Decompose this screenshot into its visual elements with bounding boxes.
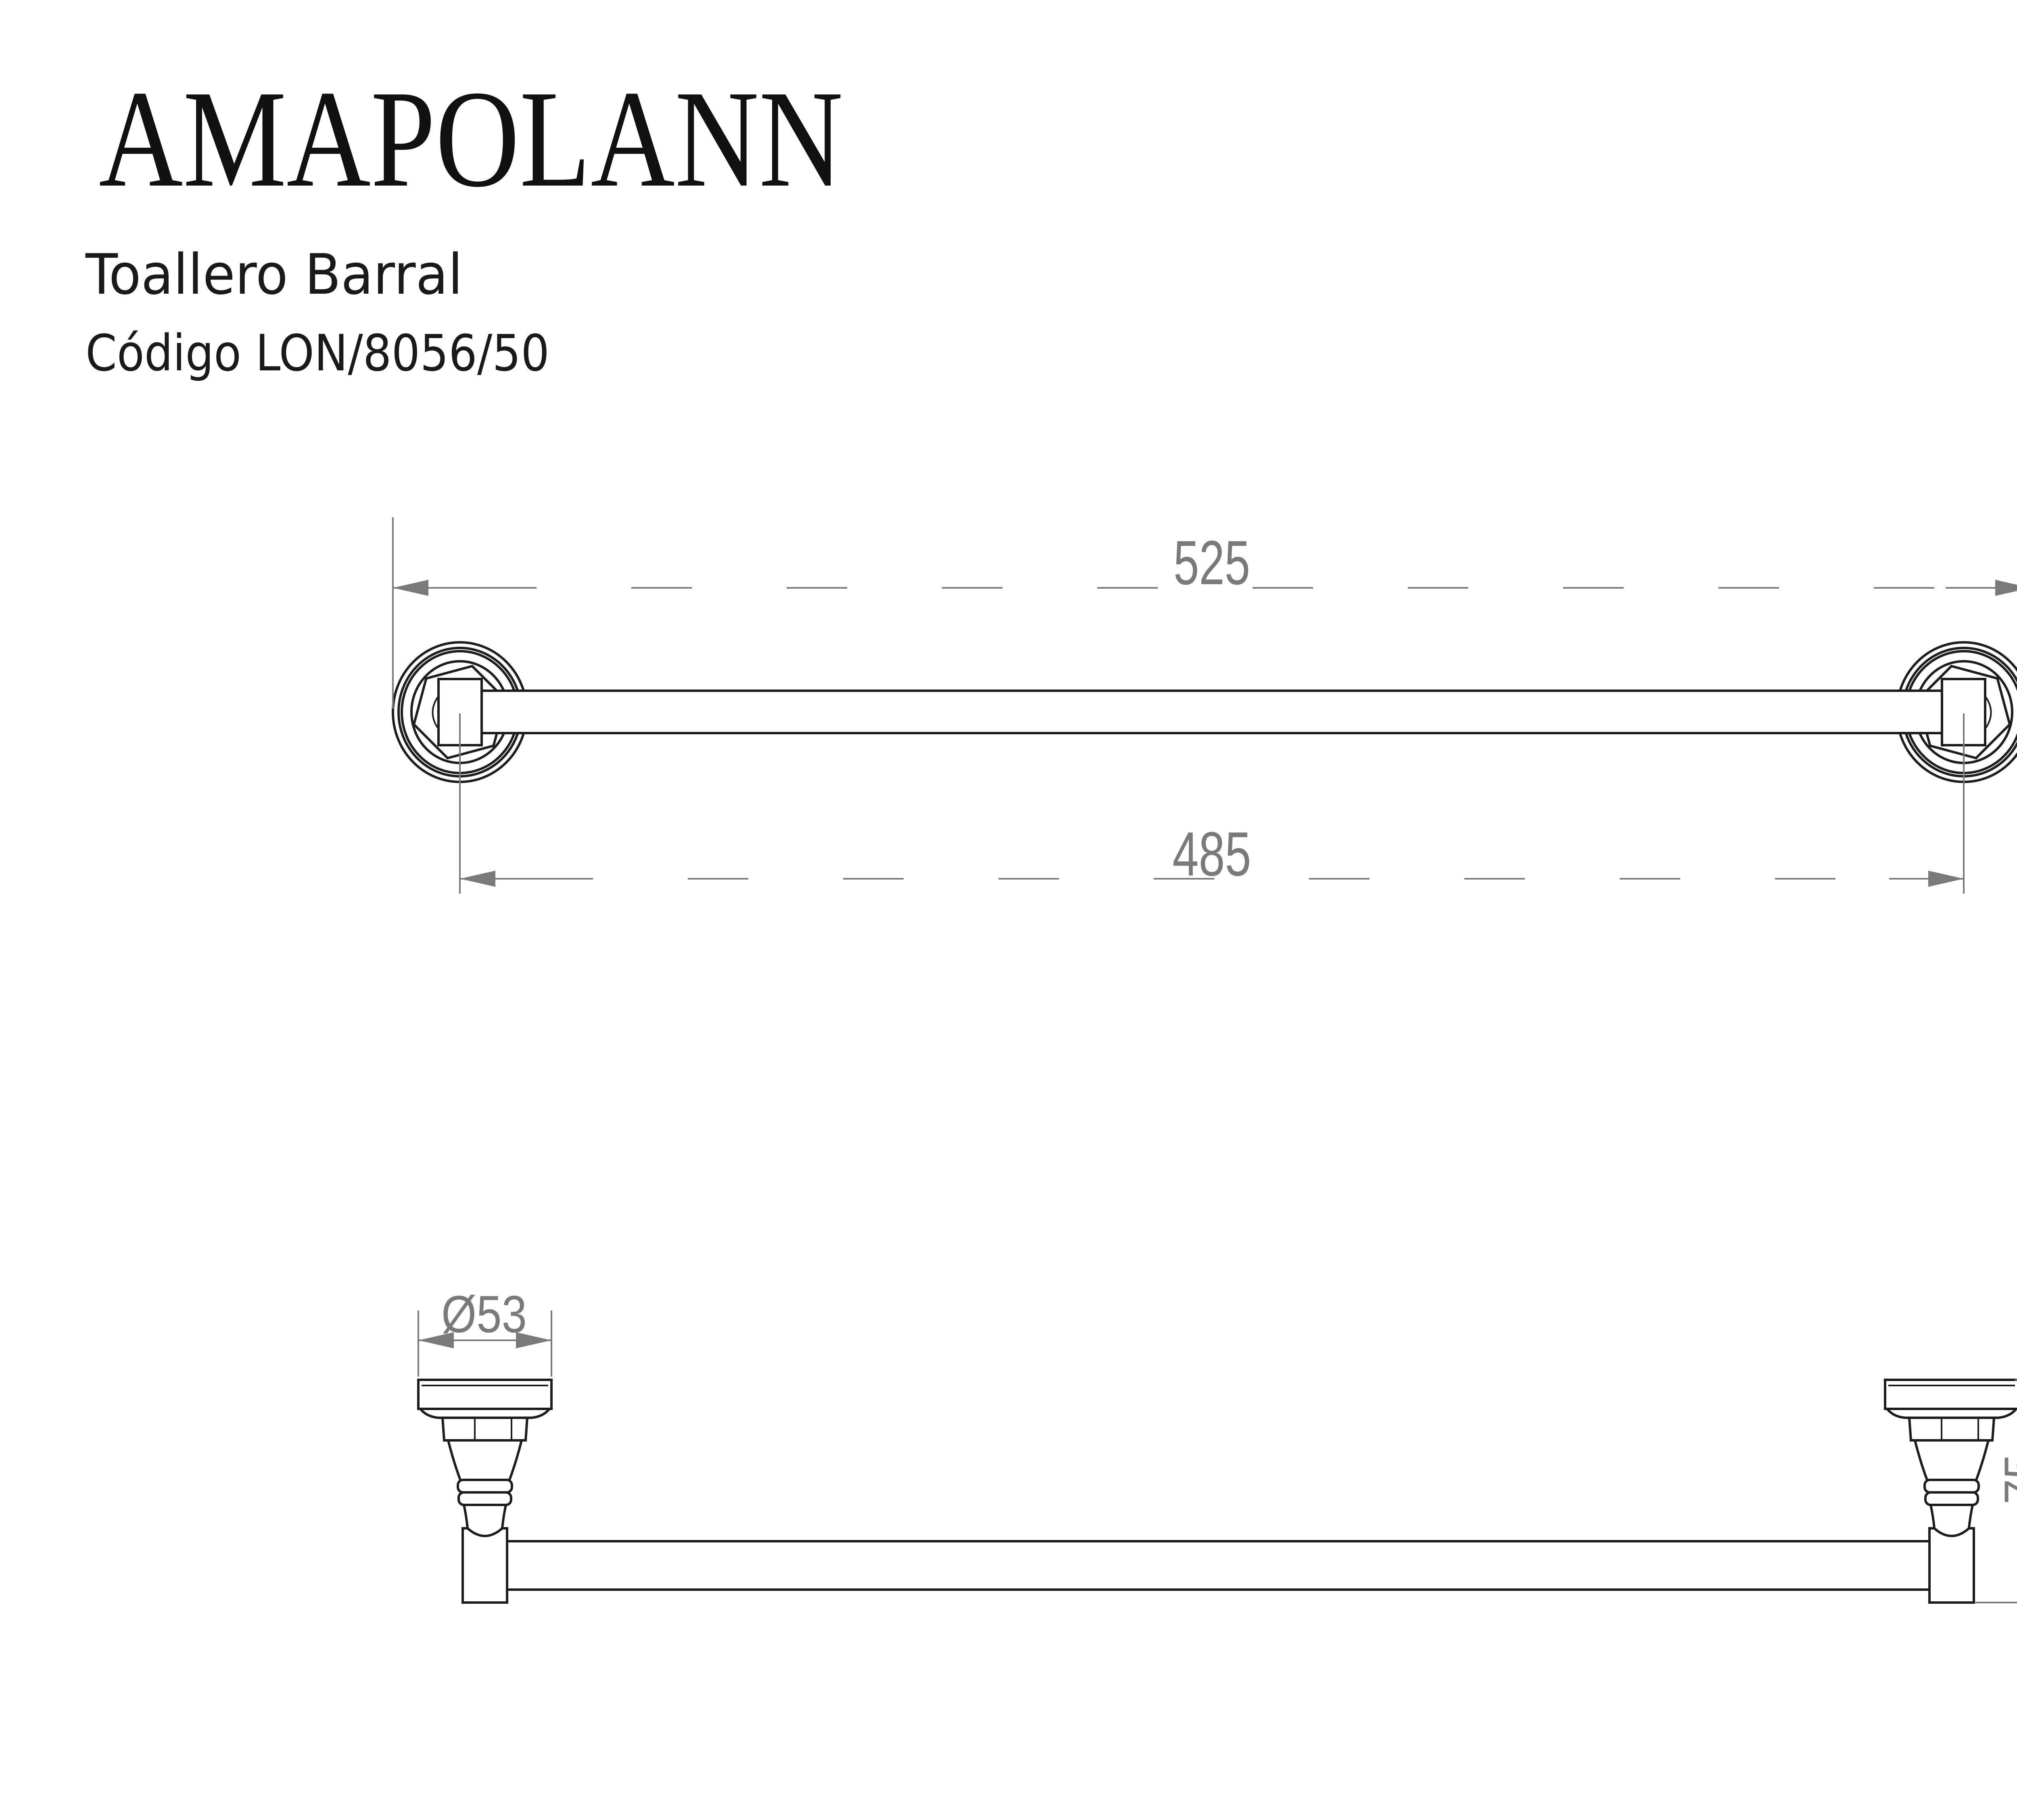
left-hex-nut-side <box>443 1418 527 1440</box>
left-collar-ring-1 <box>458 1480 512 1492</box>
dim-485-arrow-left <box>460 871 495 887</box>
left-cone-taper <box>448 1440 522 1480</box>
product-code: Código LON/8056/50 <box>86 324 549 382</box>
right-bar-socket <box>1929 1528 1974 1603</box>
towel-bar-technical-drawing: AMAPOLANN Toallero Barral Código LON/805… <box>0 0 2017 1820</box>
front-view <box>393 642 2017 782</box>
dimension-diameter-53: Ø53 <box>418 1285 551 1377</box>
front-bar-body <box>482 691 1942 733</box>
side-view <box>418 1380 2017 1603</box>
side-left-bracket <box>418 1380 551 1603</box>
dim-525-arrow-right <box>1995 580 2017 596</box>
brand-title: AMAPOLANN <box>99 62 843 216</box>
dimension-485: 485 <box>460 713 1964 894</box>
dim-485-value: 485 <box>1173 819 1251 889</box>
right-collar-ring-1 <box>1925 1480 1979 1492</box>
technical-drawing-page: AMAPOLANN Toallero Barral Código LON/805… <box>0 0 2017 1820</box>
side-dimensions: Ø53 75 <box>418 1285 2017 1603</box>
product-name: Toallero Barral <box>85 242 463 307</box>
dim-53-value: Ø53 <box>441 1285 527 1344</box>
right-lower-taper <box>1931 1505 1973 1528</box>
left-flange-lip <box>420 1409 549 1418</box>
left-bar-socket <box>463 1528 507 1603</box>
left-wall-flange <box>418 1380 551 1409</box>
header: AMAPOLANN Toallero Barral Código LON/805… <box>85 62 2017 382</box>
left-lower-taper <box>464 1505 506 1528</box>
dim-525-arrow-left <box>393 580 428 596</box>
dimension-525: 525 <box>393 517 2017 709</box>
left-collar-ring-2 <box>459 1492 511 1505</box>
right-hex-nut-side <box>1909 1418 1994 1440</box>
right-wall-flange <box>1885 1380 2017 1409</box>
dim-75-value: 75 <box>1994 1454 2017 1504</box>
dim-485-arrow-right <box>1928 871 1964 887</box>
right-collar-ring-2 <box>1925 1492 1978 1505</box>
right-cone-taper <box>1915 1440 1988 1480</box>
dim-525-value: 525 <box>1173 528 1250 598</box>
right-flange-lip <box>1887 1409 2016 1418</box>
front-bar <box>482 691 1942 733</box>
